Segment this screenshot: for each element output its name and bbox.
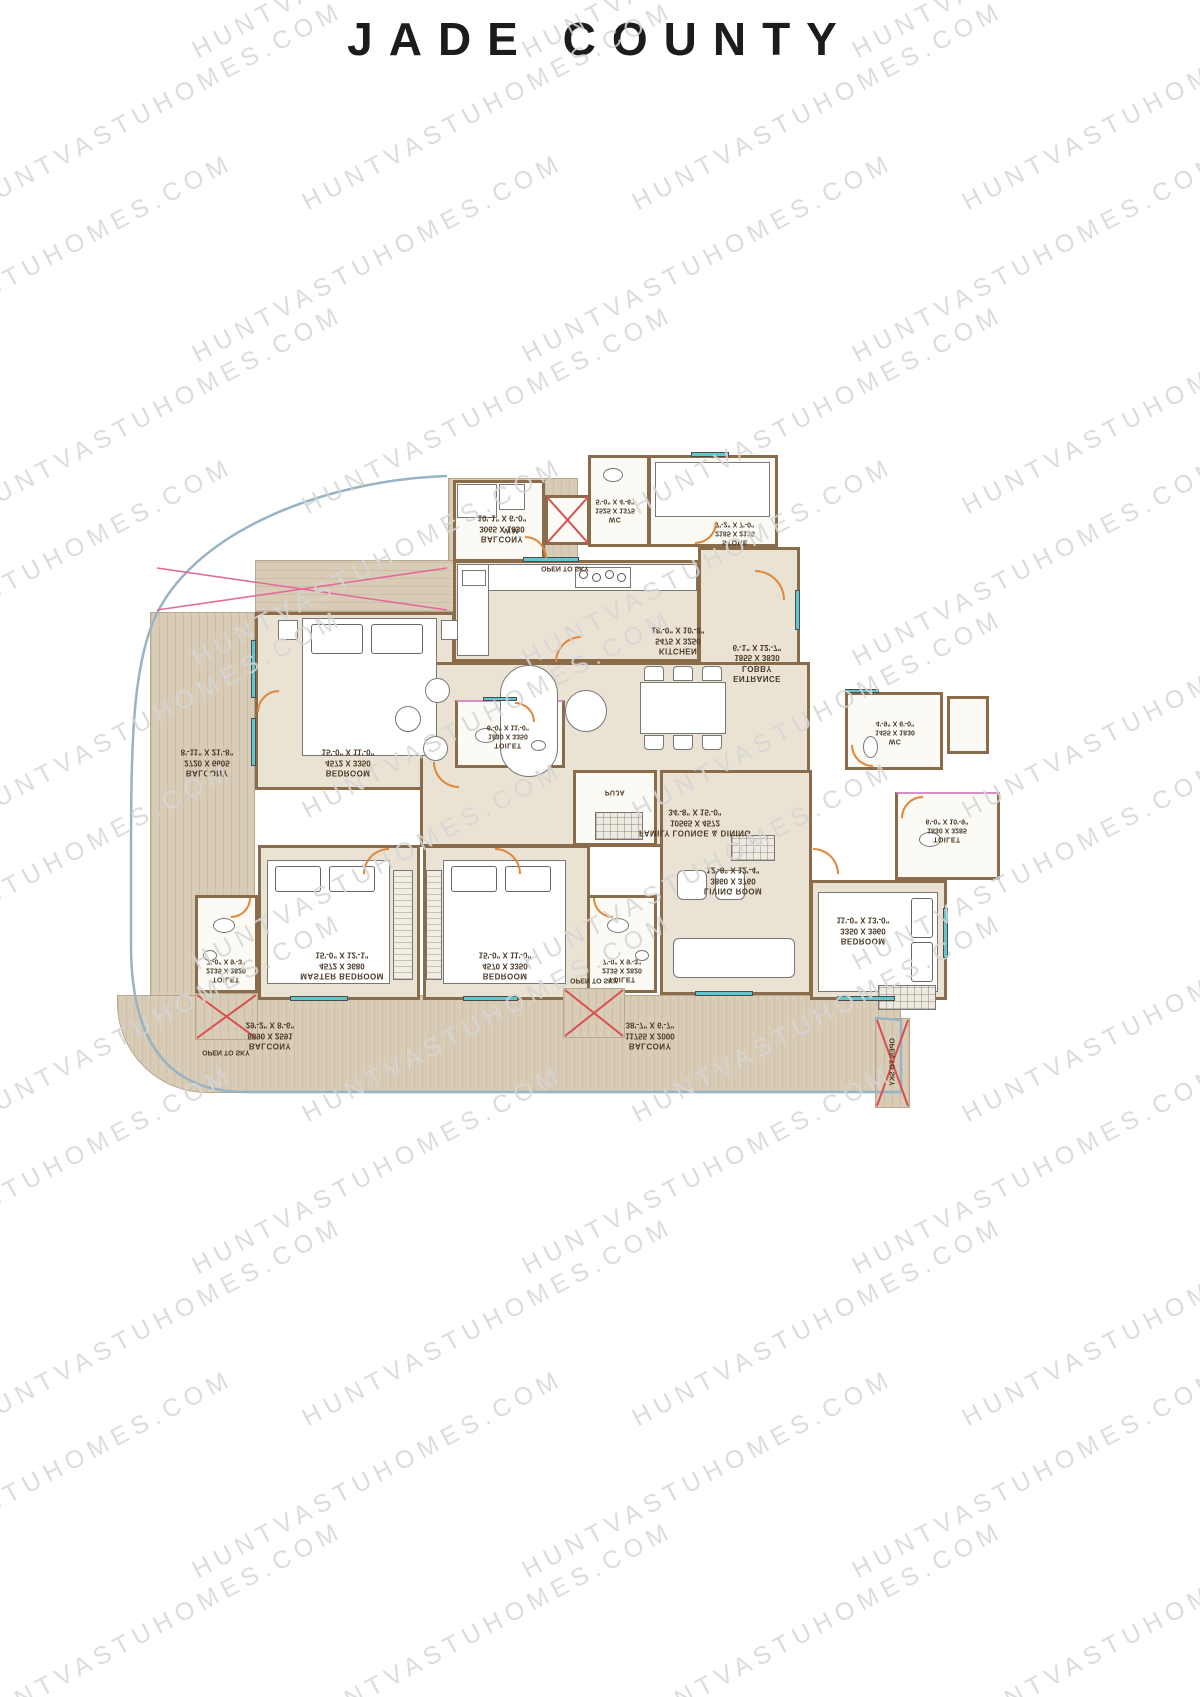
room-label-toilet-right: TOILET1830 X 32856'-0" X 10'-9" <box>926 816 969 843</box>
watermark-text: HUNTVASTUHOMES.COM <box>518 148 899 369</box>
pillow <box>311 624 363 654</box>
watermark-text: HUNTVASTUHOMES.COM <box>298 1516 679 1697</box>
window <box>691 452 729 457</box>
store-bed <box>655 462 770 517</box>
window <box>251 718 256 766</box>
window <box>251 640 256 698</box>
watermark-text: HUNTVASTUHOMES.COM <box>188 1364 569 1585</box>
watermark-text: HUNTVASTUHOMES.COM <box>958 1212 1200 1433</box>
watermark-text: HUNTVASTUHOMES.COM <box>518 1364 899 1585</box>
window <box>943 908 948 958</box>
window <box>795 590 800 630</box>
pillow <box>371 624 423 654</box>
open-to-sky-mid-box <box>563 988 625 1038</box>
coffee-table-round <box>565 690 607 732</box>
room-label-bedroom-top: BEDROOM4572 X 335015'-0" X 11'-0" <box>322 746 375 777</box>
watermark-text: HUNTVASTUHOMES.COM <box>0 1364 238 1585</box>
room-label-living-room: LIVING ROOM3860 X 376012'-8" X 12'-4" <box>704 864 762 895</box>
watermark-text: HUNTVASTUHOMES.COM <box>628 1516 1009 1697</box>
room-label-bedroom-right: BEDROOM3350 X 396011'-0" X 13'-0" <box>837 914 890 945</box>
duct-box <box>947 696 989 754</box>
dining-chair <box>644 735 664 750</box>
room-label-wc-right: WC1455 X 18304'-9" X 6'-0" <box>875 718 915 745</box>
watermark-text: HUNTVASTUHOMES.COM <box>628 1212 1009 1433</box>
watermark-text: HUNTVASTUHOMES.COM <box>0 148 238 369</box>
chair <box>423 736 448 761</box>
room-label-toilet-master: TOILET2135 X 28207'-0" X 9'-3" <box>206 956 246 983</box>
sofa-main <box>673 938 795 978</box>
pillow <box>275 866 321 892</box>
chair <box>425 678 450 703</box>
burner <box>592 573 601 582</box>
room-label-balcony-left: BALCONY2720 X 66058'-11" X 21'-8" <box>181 746 234 777</box>
room-label-toilet-top: TOILET1830 X 33506'-0" X 11'-0" <box>487 722 529 749</box>
door-bedroom-right <box>813 848 839 874</box>
watermark-text: HUNTVASTUHOMES.COM <box>848 148 1200 369</box>
kitchen-sink <box>462 570 486 586</box>
page-title: JADE COUNTY <box>0 12 1200 66</box>
room-label-family-lounge-dining: FAMILY LOUNGE & DINING10565 X 457234'-8"… <box>639 806 751 837</box>
watermark-text: HUNTVASTUHOMES.COM <box>298 1212 679 1433</box>
open-to-sky-label-left: OPEN TO SKY <box>202 1049 250 1056</box>
armchair <box>677 870 707 900</box>
window <box>845 689 879 693</box>
nightstand <box>278 620 298 640</box>
dining-chair <box>644 666 664 681</box>
washing-machine-label: W.M. <box>504 527 520 534</box>
window <box>695 991 753 996</box>
room-label-master-bedroom: MASTER BEDROOM4572 X 368015'-0" X 12'-1" <box>300 949 383 980</box>
room-label-kitchen: KITCHEN5475 X 325018'-0" X 10'-8" <box>651 624 704 655</box>
watermark-text: HUNTVASTUHOMES.COM <box>0 1212 348 1433</box>
open-to-sky-label-right: OPEN TO SKY <box>890 1038 897 1086</box>
room-label-balcony-bottom-right: BALCONY11755 X 200038'-7" X 6'-7" <box>625 1019 674 1050</box>
watermark-text: HUNTVASTUHOMES.COM <box>958 1516 1200 1697</box>
dining-chair <box>673 735 693 750</box>
floor-plan: BALCONY3065 X 183010'-1" X 6'-0" WC1525 … <box>95 440 995 1140</box>
dining-table <box>640 682 726 734</box>
window <box>483 697 517 701</box>
room-label-entrance-lobby: ENTRANCE LOBBY1855 X 38306'-1" X 12'-7" <box>720 641 794 683</box>
open-to-sky-label-mid: OPEN TO SKY <box>570 977 618 984</box>
open-to-sky-top-box <box>545 495 590 545</box>
room-label-balcony-bottom-left: BALCONY8890 X 259129'-2" X 8'-6" <box>246 1019 295 1050</box>
room-label-bedroom-mid: BEDROOM4570 X 335015'-0" X 11'-0" <box>479 949 532 980</box>
pillow <box>451 866 497 892</box>
wardrobe-mid <box>426 870 442 980</box>
burner <box>605 570 614 579</box>
puja-unit <box>595 812 643 840</box>
wc-pan <box>607 918 629 933</box>
open-to-sky-label-top: OPEN TO SKY <box>541 565 589 572</box>
pillow <box>911 942 933 982</box>
dining-chair <box>702 666 722 681</box>
dining-chair <box>702 735 722 750</box>
washing-machine <box>499 484 525 510</box>
room-label-wc-top: WC1525 X 13755'-0" X 4'-6" <box>595 496 635 523</box>
window <box>463 996 518 1001</box>
pillow <box>911 898 933 938</box>
window <box>290 996 348 1001</box>
watermark-text: HUNTVASTUHOMES.COM <box>0 1516 348 1697</box>
wc-pan <box>213 918 235 933</box>
window <box>837 996 895 1001</box>
wc-pan <box>603 468 623 482</box>
washbasin <box>531 740 546 751</box>
room-label-store: STORE2185 X 21357'-2" X 7'-0" <box>715 519 755 546</box>
burner <box>617 573 626 582</box>
deck-strip-above-bedroom <box>255 560 455 612</box>
dining-chair <box>673 666 693 681</box>
watermark-text: HUNTVASTUHOMES.COM <box>188 148 569 369</box>
wardrobe-master <box>393 870 413 980</box>
table-round <box>395 706 421 732</box>
watermark-text: HUNTVASTUHOMES.COM <box>848 1364 1200 1585</box>
tv-unit <box>731 835 775 861</box>
room-label-puja: PUJA <box>605 787 625 796</box>
